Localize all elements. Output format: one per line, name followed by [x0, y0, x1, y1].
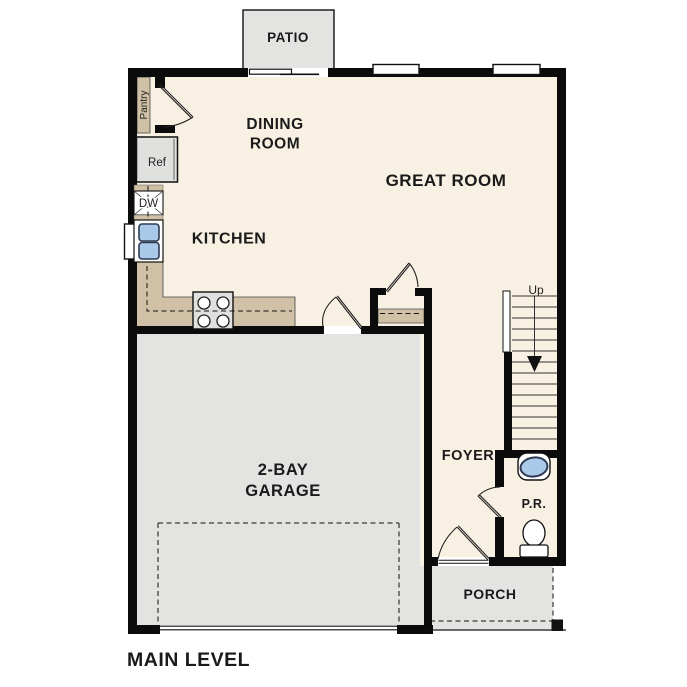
- great-room-label: GREAT ROOM: [386, 171, 507, 190]
- plan-title: MAIN LEVEL: [127, 649, 250, 671]
- wall-right: [557, 68, 566, 566]
- burner-1: [198, 297, 210, 309]
- foyer-label: FOYER: [442, 448, 494, 464]
- stairs-up-label: Up: [528, 283, 544, 297]
- wall-pr-partition-bottom: [495, 517, 504, 566]
- sink-basin-bottom: [139, 243, 159, 260]
- powder-room-label: P.R.: [522, 497, 547, 511]
- toilet-tank: [520, 545, 548, 557]
- front-door-opening: [438, 557, 489, 566]
- wall-stairs-left: [504, 352, 512, 458]
- patio-door-panel: [250, 69, 292, 74]
- garage-door-opening: [323, 326, 362, 334]
- garage-floor: [133, 330, 428, 629]
- wall-garage-bottom-left: [128, 625, 160, 634]
- sink-basin-top: [139, 224, 159, 241]
- burner-3: [198, 315, 210, 327]
- window-top-right: [493, 65, 540, 75]
- patio-label: PATIO: [267, 30, 309, 45]
- kitchen-label: KITCHEN: [192, 231, 267, 248]
- dishwasher-label: DW: [139, 198, 158, 210]
- porch-label: PORCH: [463, 586, 516, 602]
- pantry-label: Pantry: [139, 91, 150, 120]
- garage-label-line2: GARAGE: [245, 482, 320, 500]
- wall-left: [128, 68, 137, 634]
- patio-area: PATIO: [243, 10, 334, 71]
- closet-shelf: [378, 309, 424, 323]
- toilet-bowl: [523, 520, 545, 546]
- floor-plan: PATIO: [0, 0, 687, 687]
- burner-2: [217, 297, 229, 309]
- wall-foyer-bottom-left: [424, 557, 438, 566]
- refrigerator-label: Ref: [148, 157, 167, 169]
- wall-closet-right-stub: [415, 288, 432, 296]
- garage-label-line1: 2-BAY: [258, 461, 309, 479]
- stair-handrail: [503, 291, 510, 352]
- floor-plan-page: PATIO: [0, 0, 687, 687]
- window-top-left: [373, 65, 419, 75]
- wall-closet-top-stub: [370, 288, 386, 295]
- wall-pr-partition-top: [495, 450, 504, 487]
- window-kitchen-sink: [125, 224, 135, 259]
- dining-room-label-line2: ROOM: [250, 136, 300, 153]
- burner-4: [217, 315, 229, 327]
- dining-room-label-line1: DINING: [246, 116, 303, 133]
- wall-garage-right: [424, 288, 432, 634]
- porch-post: [552, 620, 564, 632]
